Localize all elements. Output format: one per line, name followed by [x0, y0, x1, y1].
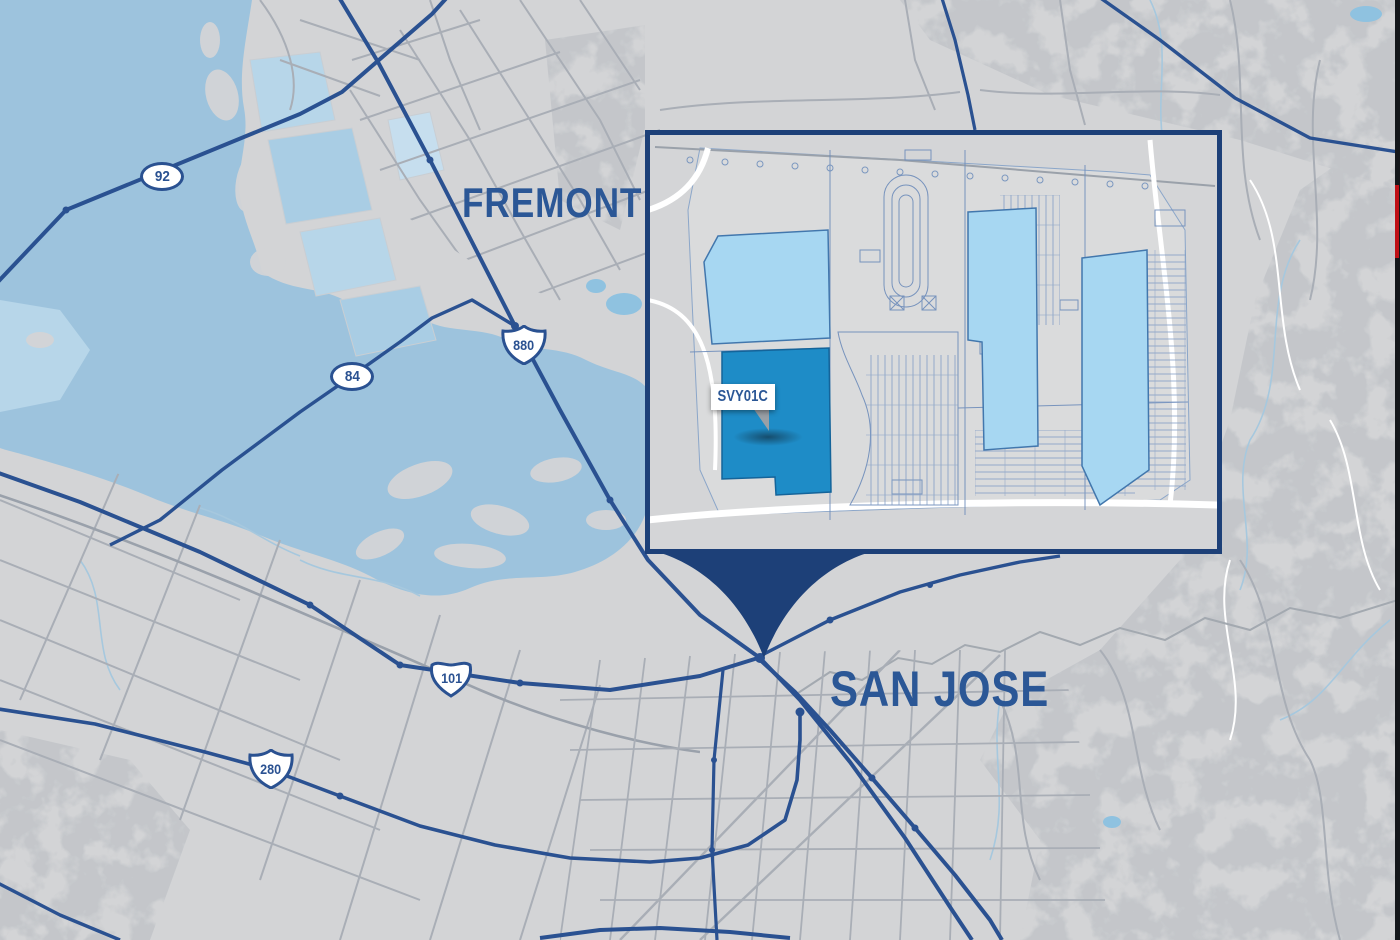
inset-siteplan	[648, 140, 1218, 520]
shield-route-84: 84	[330, 362, 374, 391]
shield-us-101: 101	[429, 658, 475, 698]
site-marker-svy01c[interactable]: SVY01C	[711, 384, 775, 410]
shield-route-84-number: 84	[344, 368, 359, 385]
map-canvas	[0, 0, 1400, 940]
edge-artifact-red-segment	[1395, 185, 1399, 258]
shield-interstate-280: 280	[248, 749, 294, 789]
shield-880-number: 880	[513, 337, 534, 353]
shield-interstate-880: 880	[501, 325, 547, 365]
site-marker-label: SVY01C	[718, 388, 768, 406]
building-a	[704, 230, 830, 344]
site-label-pointer	[753, 408, 769, 431]
edge-artifact-strip	[1395, 0, 1400, 940]
map-viewport: FREMONT SAN JOSE 92 84 880 101 280 SVY01…	[0, 0, 1400, 940]
building-d	[1082, 250, 1149, 505]
shield-route-92: 92	[140, 162, 184, 191]
shield-101-number: 101	[441, 670, 462, 686]
city-label-san-jose: SAN JOSE	[830, 660, 1049, 718]
shield-route-92-number: 92	[154, 168, 169, 185]
shield-280-number: 280	[260, 761, 281, 777]
city-label-fremont: FREMONT	[462, 179, 642, 227]
building-svy01c	[722, 348, 831, 495]
